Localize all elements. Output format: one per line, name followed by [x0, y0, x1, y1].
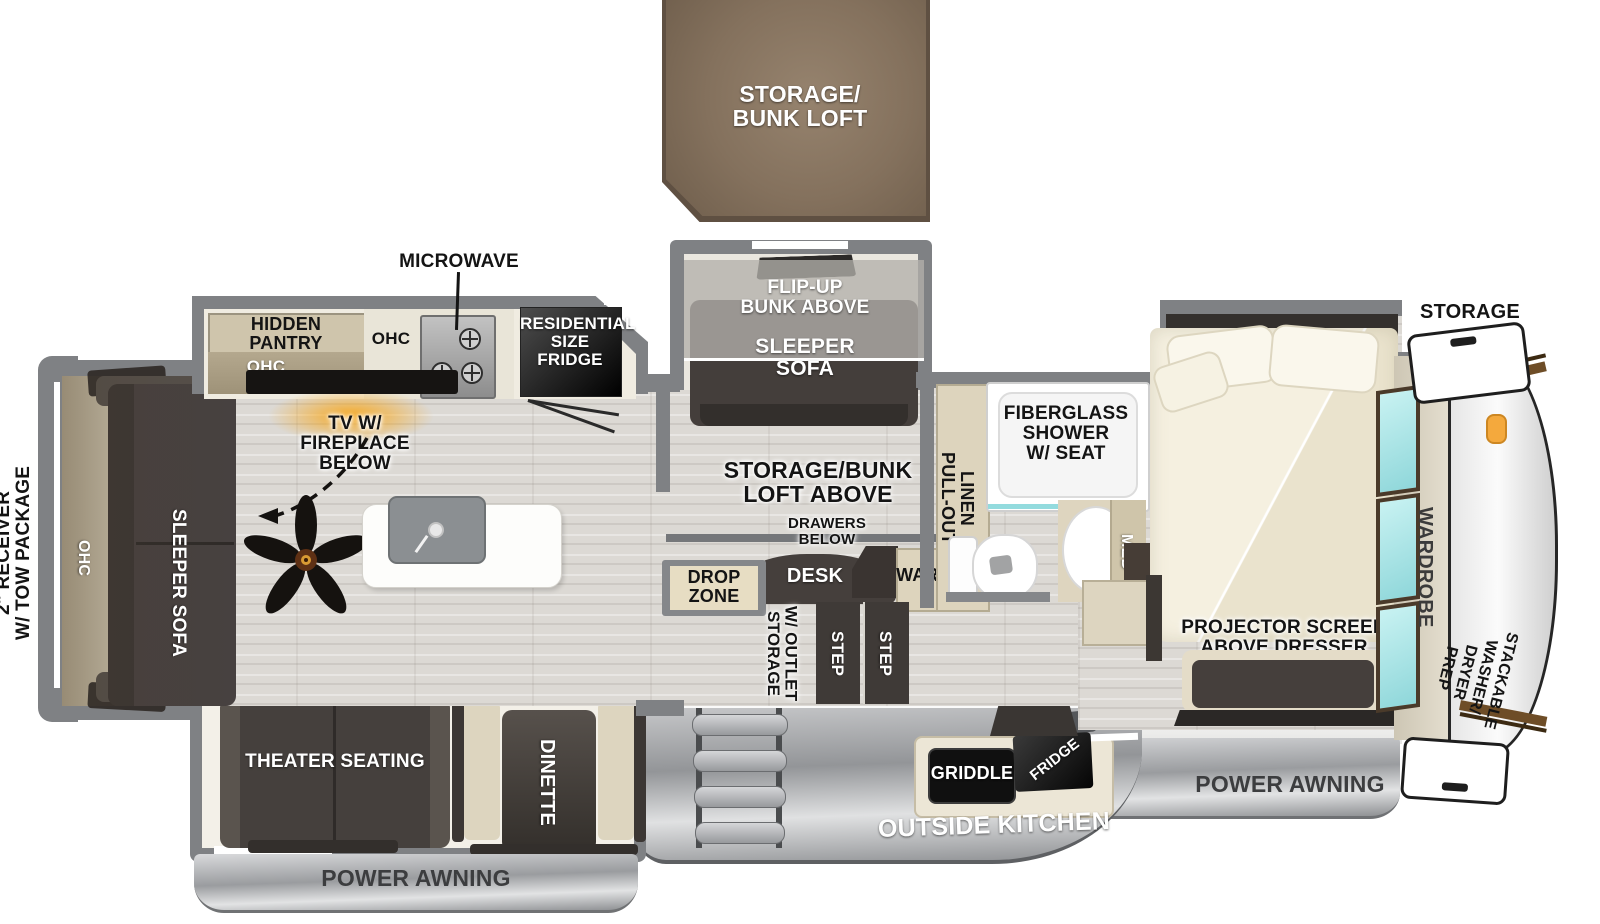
front-storage-hatch	[1406, 321, 1532, 405]
ceiling-fan	[238, 492, 374, 628]
bath-bottom-wall-left	[946, 592, 1050, 602]
griddle-label: GRIDDLE	[928, 764, 1016, 783]
projector-screen	[1174, 710, 1404, 726]
step-tread	[693, 750, 787, 772]
bath-left-wall	[920, 376, 934, 608]
marker-light	[1486, 414, 1507, 444]
bottom-wall-mid	[636, 700, 684, 716]
flip-up-bunk-label: FLIP-UP BUNK ABOVE	[700, 278, 910, 318]
bed-pillow	[1268, 323, 1381, 394]
dinette-bench-right	[598, 702, 634, 840]
bunk-sleeper-sofa-label: SLEEPER SOFA	[712, 336, 898, 380]
drop-zone-label: DROP ZONE	[670, 568, 758, 606]
drawers-below-label: DRAWERS BELOW	[774, 516, 880, 548]
storage-outlet-label: STORAGE W/ OUTLET	[764, 598, 800, 710]
front-awning-label: POWER AWNING	[1180, 772, 1400, 796]
entry-door-mat	[990, 704, 1078, 736]
dinette-label: DINETTE	[536, 722, 557, 842]
loft-above-label: STORAGE/BUNK LOFT ABOVE	[700, 458, 936, 506]
theater-seam	[333, 700, 336, 846]
counter-ohc-label: OHC	[364, 330, 418, 348]
dresser	[1192, 660, 1374, 708]
theater-step-trim	[248, 840, 398, 853]
step-tread	[694, 786, 786, 808]
microwave-label: MICROWAVE	[386, 252, 532, 272]
dinette-bench-left	[464, 702, 500, 840]
step-2-label: STEP	[876, 616, 894, 692]
dinette-bench-back-left	[452, 700, 464, 842]
sink-faucet	[428, 522, 444, 538]
roof-vent-trim	[752, 241, 848, 249]
bunk-loft-label: STORAGE/ BUNK LOFT	[700, 82, 900, 130]
rear-ohc-label: OHC	[74, 528, 91, 588]
entry-steps	[688, 708, 792, 852]
receiver-label: 2" RECEIVER W/ TOW PACKAGE	[0, 428, 40, 678]
fifth-wheel-floorplan: STORAGE/ BUNK LOFT POWER AWNING GRIDDLE …	[0, 0, 1600, 924]
door-side-awning-label: POWER AWNING	[310, 866, 522, 890]
theater-armrest-right	[430, 698, 450, 848]
dinette-bench-back-right	[634, 700, 646, 842]
theater-armrest-left	[220, 698, 240, 848]
bunk-room-partition	[656, 386, 670, 492]
theater-seating-label: THEATER SEATING	[232, 752, 438, 772]
residential-fridge-label: RESIDENTIAL SIZE FRIDGE	[520, 315, 620, 369]
hatch-handle	[1450, 336, 1477, 347]
rear-sleeper-sofa-label: SLEEPER SOFA	[168, 488, 188, 678]
hidden-pantry-label: HIDDEN PANTRY	[214, 315, 358, 353]
tv	[246, 370, 458, 394]
step-tread	[692, 714, 788, 736]
rear-cap-trim	[54, 382, 60, 688]
step-1-label: STEP	[828, 616, 846, 692]
front-storage-label: STORAGE	[1412, 302, 1528, 323]
bunk-sofa-base	[700, 404, 908, 426]
step-tread	[695, 822, 785, 844]
toilet-flush	[989, 555, 1013, 576]
bedroom-step-landing	[1082, 580, 1154, 646]
shower-label: FIBERGLASS SHOWER W/ SEAT	[990, 404, 1142, 464]
bedroom-step-panel	[1146, 575, 1162, 661]
